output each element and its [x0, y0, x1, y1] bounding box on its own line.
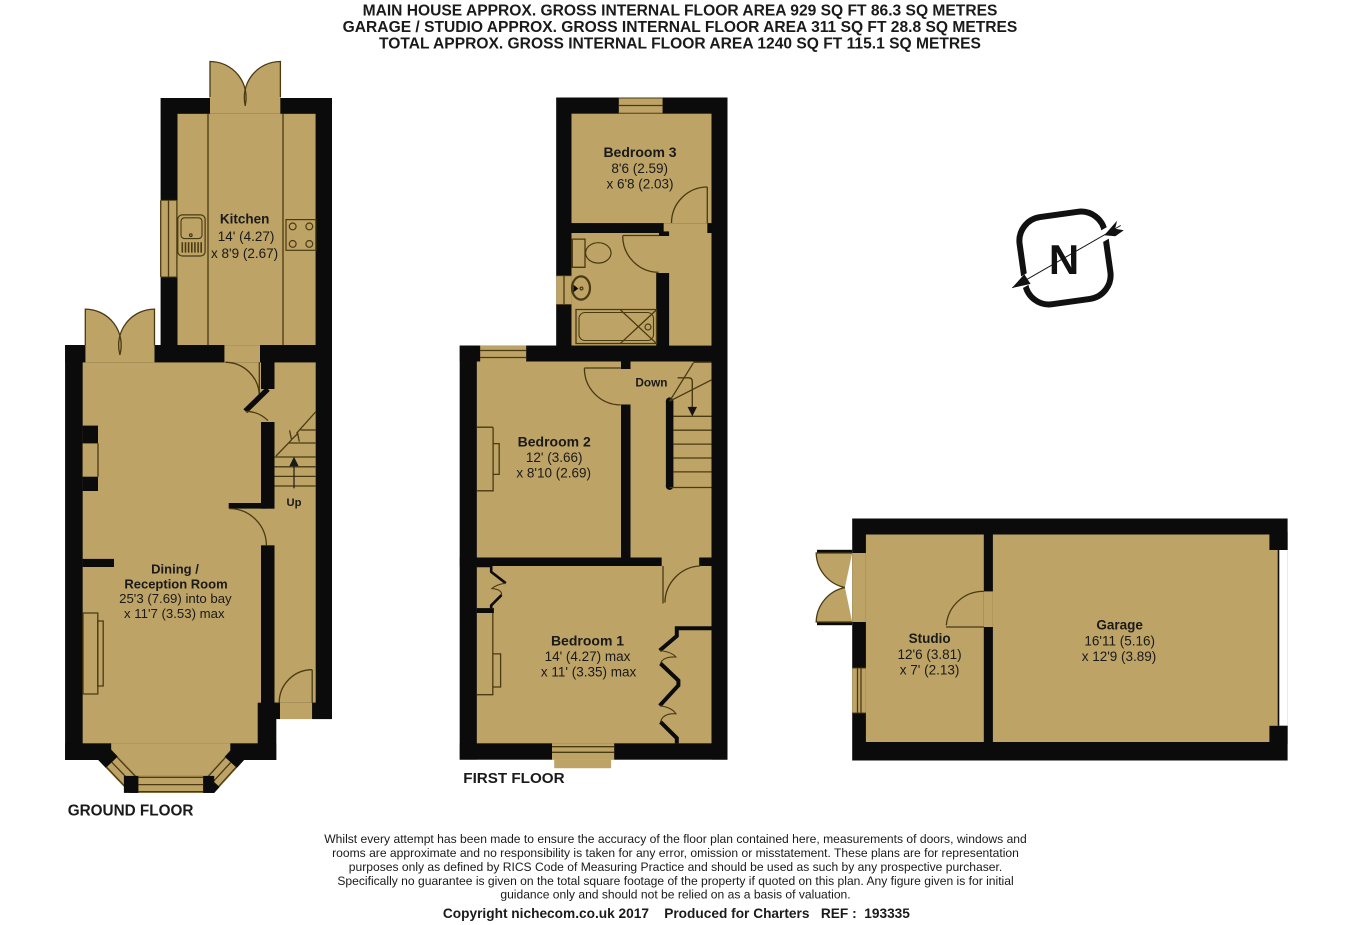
- svg-text:x 12'9 (3.89): x 12'9 (3.89): [1082, 649, 1157, 664]
- svg-text:Copyright nichecom.co.uk 2017: Copyright nichecom.co.uk 2017 Produced f…: [443, 906, 910, 921]
- svg-text:Dining /: Dining /: [151, 562, 199, 577]
- svg-text:12' (3.66): 12' (3.66): [526, 450, 583, 465]
- svg-text:Bedroom 3: Bedroom 3: [603, 144, 676, 160]
- svg-text:Whilst every attempt has been: Whilst every attempt has been made to en…: [324, 832, 1027, 846]
- svg-text:x 8'9 (2.67): x 8'9 (2.67): [211, 246, 278, 261]
- svg-text:Reception Room: Reception Room: [124, 577, 227, 592]
- svg-text:N: N: [1049, 236, 1079, 283]
- svg-text:rooms are approximate and no r: rooms are approximate and no responsibil…: [332, 846, 1019, 860]
- svg-text:Down: Down: [635, 376, 667, 390]
- svg-text:x 8'10 (2.69): x 8'10 (2.69): [516, 466, 591, 481]
- svg-text:Specifically no guarantee is g: Specifically no guarantee is given on th…: [337, 874, 1013, 888]
- svg-text:guidance only and should not b: guidance only and should not be relied o…: [500, 888, 850, 902]
- svg-text:Studio: Studio: [909, 631, 951, 646]
- svg-text:Up: Up: [287, 497, 302, 509]
- svg-text:16'11 (5.16): 16'11 (5.16): [1084, 633, 1155, 648]
- svg-text:Bedroom 1: Bedroom 1: [551, 633, 624, 649]
- svg-text:x 7' (2.13): x 7' (2.13): [900, 663, 960, 678]
- svg-text:TOTAL APPROX. GROSS INTERNAL F: TOTAL APPROX. GROSS INTERNAL FLOOR AREA …: [379, 36, 981, 53]
- svg-text:12'6 (3.81): 12'6 (3.81): [898, 647, 962, 662]
- svg-text:Kitchen: Kitchen: [220, 212, 270, 227]
- svg-text:FIRST FLOOR: FIRST FLOOR: [463, 770, 564, 787]
- svg-text:purposes only as defined by RI: purposes only as defined by RICS Code of…: [349, 860, 1002, 874]
- svg-text:GARAGE / STUDIO APPROX. GROSS: GARAGE / STUDIO APPROX. GROSS INTERNAL F…: [343, 19, 1018, 36]
- svg-text:25'3 (7.69) into bay: 25'3 (7.69) into bay: [119, 591, 232, 606]
- svg-text:14' (4.27) max: 14' (4.27) max: [545, 649, 631, 664]
- svg-text:x 6'8 (2.03): x 6'8 (2.03): [606, 177, 673, 192]
- svg-text:GROUND FLOOR: GROUND FLOOR: [68, 802, 194, 819]
- svg-text:x 11'7 (3.53) max: x 11'7 (3.53) max: [124, 606, 225, 621]
- svg-text:x 11' (3.35) max: x 11' (3.35) max: [541, 665, 637, 680]
- svg-text:14' (4.27): 14' (4.27): [218, 229, 275, 244]
- svg-text:8'6 (2.59): 8'6 (2.59): [611, 161, 668, 176]
- svg-text:Garage: Garage: [1096, 618, 1143, 633]
- svg-text:Bedroom 2: Bedroom 2: [518, 434, 591, 450]
- svg-text:MAIN HOUSE APPROX. GROSS INTER: MAIN HOUSE APPROX. GROSS INTERNAL FLOOR …: [363, 3, 998, 20]
